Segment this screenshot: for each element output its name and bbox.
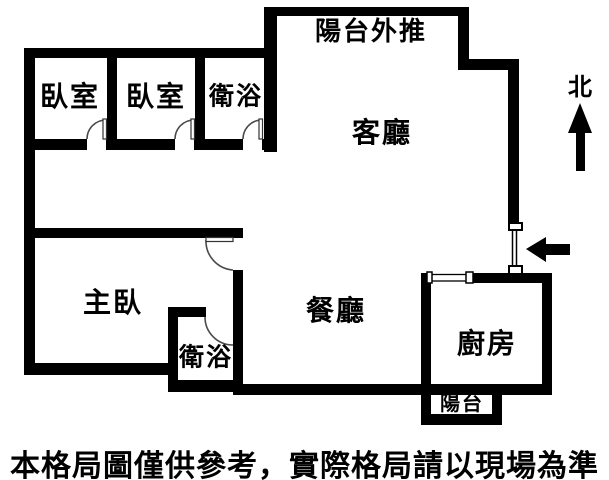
floor-plan-drawing: [0, 0, 609, 480]
floor-plan-page: 陽台外推 客廳 臥室 臥室 衛浴 主臥 餐廳 衛浴 廚房 陽台 北 本格局圖僅供…: [0, 0, 609, 480]
kitchen-window: [427, 272, 473, 283]
wall-row-bottom-seg1: [24, 139, 87, 150]
walls: [24, 7, 552, 425]
wall-bump-left: [264, 7, 277, 152]
wall-kitchen-right: [542, 273, 552, 395]
wall-living-right: [508, 59, 519, 224]
disclaimer-text: 本格局圖僅供參考，實際格局請以現場為準: [0, 441, 609, 480]
door-arc-master: [206, 240, 233, 270]
label-dining-room: 餐廳: [306, 297, 366, 325]
wall-bath2-left: [168, 307, 178, 392]
label-bedroom-2: 臥室: [126, 83, 186, 111]
north-arrow-icon: [568, 103, 592, 171]
wall-bedroom-row-top: [24, 48, 277, 58]
door-leaf-bedroom2: [191, 119, 195, 139]
wall-center-divider: [233, 270, 243, 395]
window-cap-right: [466, 272, 473, 283]
entrance-door: [509, 223, 522, 274]
label-north: 北: [568, 76, 594, 100]
label-bathroom-top: 衛浴: [209, 85, 263, 110]
window-cap-left: [427, 272, 432, 283]
label-balcony: 陽台: [440, 394, 484, 414]
entrance-door-cap-top: [509, 223, 522, 230]
entrance-arrow-icon: [526, 237, 570, 262]
wall-outer-left: [24, 48, 35, 375]
north-arrow-shaft: [576, 133, 585, 171]
wall-bedroom-divider-1: [107, 48, 117, 150]
wall-master-top: [24, 228, 243, 238]
label-balcony-extension: 陽台外推: [315, 18, 427, 44]
wall-kitchen-left: [421, 273, 431, 395]
label-living-room: 客廳: [352, 119, 412, 147]
wall-bump-top: [264, 7, 469, 16]
door-leaves: [103, 119, 263, 242]
wall-bath2-top: [168, 307, 206, 317]
door-leaf-bathroom-top: [259, 119, 263, 139]
entrance-door-cap-bottom: [509, 266, 522, 274]
wall-bath2-bottom: [168, 380, 243, 392]
door-leaf-master: [206, 238, 233, 242]
wall-row-bottom-seg2: [106, 139, 175, 150]
wall-bedroom-divider-2: [195, 48, 205, 150]
wall-bottom-long: [233, 384, 552, 395]
label-bathroom-mid: 衛浴: [179, 346, 233, 371]
label-master-bedroom: 主臥: [83, 289, 143, 317]
entrance-door-leaf: [513, 229, 517, 268]
north-arrow-head: [568, 103, 592, 133]
door-arc-bathroom-mid: [205, 317, 233, 345]
label-bedroom-1: 臥室: [40, 83, 100, 111]
label-kitchen: 廚房: [457, 330, 517, 358]
wall-balcony-bottom: [421, 414, 502, 425]
door-leaf-bedroom1: [103, 119, 107, 139]
wall-master-bottom: [24, 363, 168, 375]
window-pane: [431, 275, 469, 282]
wall-row-bottom-seg3: [194, 139, 243, 150]
